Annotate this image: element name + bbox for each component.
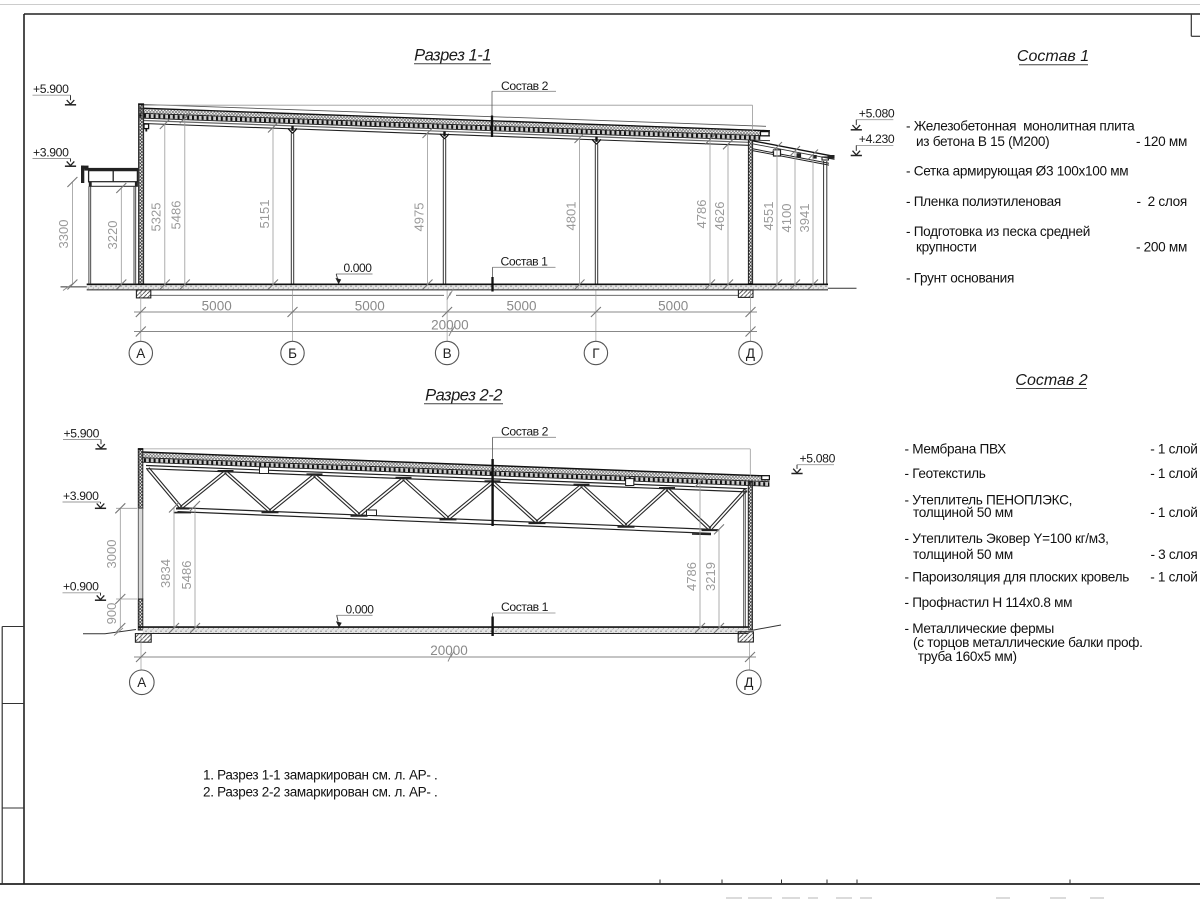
svg-text:5325: 5325	[149, 203, 164, 232]
svg-text:+3.900: +3.900	[63, 489, 99, 503]
svg-text:- Профнастил Н 114х0.8 мм: - Профнастил Н 114х0.8 мм	[905, 595, 1073, 610]
svg-text:- 120 мм: - 120 мм	[1136, 134, 1187, 149]
svg-text:А: А	[137, 675, 146, 690]
svg-text:+5.080: +5.080	[800, 452, 836, 466]
svg-text:20000: 20000	[430, 643, 468, 658]
svg-text:- Подготовка из песка средней: - Подготовка из песка средней	[906, 224, 1090, 239]
svg-text:3834: 3834	[158, 559, 173, 588]
svg-text:крупности: крупности	[916, 239, 977, 254]
svg-text:4626: 4626	[712, 202, 727, 231]
svg-text:3220: 3220	[105, 221, 120, 250]
svg-text:4786: 4786	[694, 200, 709, 229]
svg-text:Г: Г	[592, 346, 600, 361]
svg-text:- Грунт основания: - Грунт основания	[906, 270, 1014, 285]
svg-text:- Пароизоляция для плоских кро: - Пароизоляция для плоских кровель	[905, 570, 1130, 585]
svg-text:Состав 2: Состав 2	[501, 79, 549, 93]
svg-text:Д: Д	[746, 346, 755, 361]
svg-text:А: А	[136, 346, 145, 361]
svg-text:4801: 4801	[563, 202, 578, 231]
svg-text:Б: Б	[288, 346, 297, 361]
svg-text:- 200 мм: - 200 мм	[1136, 239, 1187, 254]
svg-text:толщиной 50 мм: толщиной 50 мм	[913, 505, 1013, 520]
svg-text:(с торцов металлические балки: (с торцов металлические балки проф.	[913, 635, 1143, 650]
svg-text:- 3 слоя: - 3 слоя	[1150, 547, 1197, 562]
svg-text:- Геотекстиль: - Геотекстиль	[905, 466, 986, 481]
svg-text:3000: 3000	[104, 540, 119, 569]
svg-text:3941: 3941	[797, 204, 812, 233]
svg-text:+4.230: +4.230	[859, 132, 895, 146]
svg-text:Разрез 1-1: Разрез 1-1	[414, 46, 491, 64]
svg-text:- Металлические фермы: - Металлические фермы	[905, 621, 1054, 636]
svg-text:- 1 слой: - 1 слой	[1150, 505, 1197, 520]
svg-text:20000: 20000	[431, 317, 469, 332]
svg-text:Состав 2: Состав 2	[1015, 372, 1087, 389]
svg-text:3219: 3219	[703, 562, 718, 591]
svg-text:0.000: 0.000	[346, 602, 375, 616]
svg-text:Состав 1: Состав 1	[1017, 48, 1089, 65]
svg-text:Разрез 2-2: Разрез 2-2	[425, 386, 502, 404]
svg-text:5000: 5000	[355, 299, 385, 314]
svg-text:Д: Д	[744, 675, 753, 690]
svg-text:5486: 5486	[169, 201, 184, 230]
svg-text:- 1 слой: - 1 слой	[1150, 570, 1197, 585]
svg-text:Состав 1: Состав 1	[501, 600, 549, 614]
svg-text:4551: 4551	[761, 202, 776, 231]
svg-text:- 1 слой: - 1 слой	[1150, 442, 1197, 457]
svg-text:- Железобетонная монолитная п: - Железобетонная монолитная плита	[906, 119, 1135, 134]
svg-text:В: В	[443, 346, 452, 361]
svg-text:+5.900: +5.900	[33, 82, 69, 96]
svg-text:из бетона В 15 (М200): из бетона В 15 (М200)	[916, 134, 1049, 149]
svg-text:1. Разрез 1-1 замаркирован см.: 1. Разрез 1-1 замаркирован см. л. АР- .	[203, 768, 437, 783]
svg-text:+5.900: +5.900	[64, 426, 100, 440]
svg-text:+0.900: +0.900	[63, 580, 99, 594]
svg-text:2. Разрез 2-2 замаркирован см.: 2. Разрез 2-2 замаркирован см. л. АР- .	[203, 785, 437, 800]
svg-text:толщиной 50 мм: толщиной 50 мм	[913, 547, 1013, 562]
svg-text:5000: 5000	[202, 299, 232, 314]
svg-text:труба 160х5 мм): труба 160х5 мм)	[918, 649, 1017, 664]
svg-text:- Утеплитель Эковер Y=100 кг/м: - Утеплитель Эковер Y=100 кг/м3,	[905, 531, 1109, 546]
svg-text:- Мембрана ПВХ: - Мембрана ПВХ	[905, 442, 1007, 457]
svg-text:Состав 1: Состав 1	[501, 254, 549, 268]
svg-text:5000: 5000	[506, 299, 536, 314]
svg-text:5000: 5000	[658, 299, 688, 314]
svg-text:+3.900: +3.900	[33, 145, 69, 159]
svg-text:4786: 4786	[684, 562, 699, 591]
svg-text:5151: 5151	[257, 200, 272, 229]
svg-text:- Сетка армирующая Ø3 100х100: - Сетка армирующая Ø3 100х100 мм	[906, 164, 1128, 179]
svg-text:5486: 5486	[179, 561, 194, 590]
svg-text:- 2 слоя: - 2 слоя	[1136, 194, 1187, 209]
svg-text:+5.080: +5.080	[859, 107, 895, 121]
svg-text:900: 900	[104, 603, 119, 625]
svg-text:4975: 4975	[411, 203, 426, 232]
svg-text:4100: 4100	[779, 204, 794, 233]
svg-text:3300: 3300	[56, 220, 71, 249]
svg-text:- 1 слой: - 1 слой	[1150, 466, 1197, 481]
svg-text:0.000: 0.000	[344, 261, 373, 275]
svg-text:Состав 2: Состав 2	[501, 424, 549, 438]
svg-text:- Пленка полиэтиленовая: - Пленка полиэтиленовая	[906, 194, 1061, 209]
